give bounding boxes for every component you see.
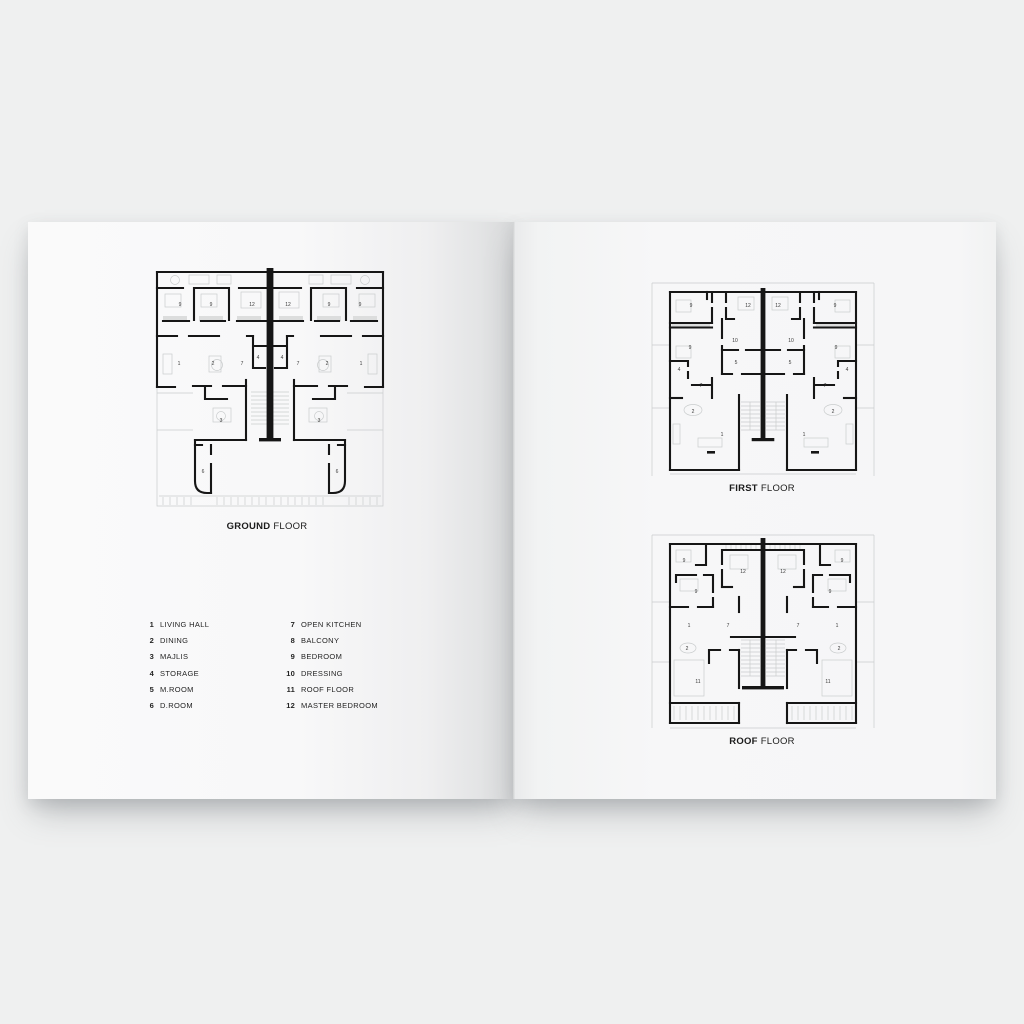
room-number-label: 12 xyxy=(740,569,746,575)
room-number-label: 9 xyxy=(829,589,832,595)
legend-row: 8BALCONY xyxy=(277,632,378,648)
legend-number: 3 xyxy=(138,652,154,661)
ground-party-wall xyxy=(267,268,274,440)
roof-party-wall-foot xyxy=(742,686,784,689)
room-number-label: 2 xyxy=(212,361,215,367)
room-number-label: 9 xyxy=(683,558,686,564)
room-number-label: 7 xyxy=(824,383,827,389)
room-number-label: 12 xyxy=(745,303,751,309)
room-number-label: 5 xyxy=(789,360,792,366)
room-number-label: 9 xyxy=(834,303,837,309)
book-spread-photo: 99121299127447213366 GROUNDFLOOR 1LIVING… xyxy=(0,0,1024,1024)
room-number-label: 6 xyxy=(202,469,205,475)
room-number-label: 2 xyxy=(832,409,835,415)
plan-title-ground: GROUNDFLOOR xyxy=(167,521,367,532)
room-number-label: 9 xyxy=(689,345,692,351)
left-page: 99121299127447213366 GROUNDFLOOR 1LIVING… xyxy=(28,222,514,799)
plan-title-first-rest: FLOOR xyxy=(761,483,795,494)
plan-title-roof-rest: FLOOR xyxy=(761,736,795,747)
legend-number: 1 xyxy=(138,620,154,629)
floor-plan-first: 9121299101095544772211 xyxy=(651,279,875,483)
room-number-label: 1 xyxy=(688,623,691,629)
legend-row: 1LIVING HALL xyxy=(138,616,209,632)
plan-title-first: FIRSTFLOOR xyxy=(662,483,862,494)
legend-column-1: 1LIVING HALL2DINING3MAJLIS4STORAGE5M.ROO… xyxy=(138,616,209,714)
legend-label: D.ROOM xyxy=(160,701,193,710)
legend-number: 10 xyxy=(277,669,295,678)
plan-title-roof-bold: ROOF xyxy=(729,736,757,747)
plan-title-ground-rest: FLOOR xyxy=(273,521,307,532)
right-page: 9121299101095544772211 FIRSTFLOOR xyxy=(514,222,996,799)
legend-number: 12 xyxy=(277,701,295,710)
ground-party-wall-foot xyxy=(259,438,281,441)
book-gutter-fold xyxy=(513,222,515,799)
room-number-label: 1 xyxy=(721,432,724,438)
room-number-label: 7 xyxy=(727,623,730,629)
room-number-label: 1 xyxy=(836,623,839,629)
room-number-label: 1 xyxy=(803,432,806,438)
plan-title-first-bold: FIRST xyxy=(729,483,758,494)
room-number-label: 10 xyxy=(732,338,738,344)
legend-row: 7OPEN KITCHEN xyxy=(277,616,378,632)
legend-label: MAJLIS xyxy=(160,652,188,661)
first-party-wall xyxy=(761,288,766,440)
room-number-label: 11 xyxy=(695,679,700,685)
room-number-label: 10 xyxy=(788,338,794,344)
room-number-label: 9 xyxy=(690,303,693,309)
room-number-label: 7 xyxy=(700,383,703,389)
legend-number: 4 xyxy=(138,669,154,678)
open-book: 99121299127447213366 GROUNDFLOOR 1LIVING… xyxy=(28,222,996,799)
room-number-label: 2 xyxy=(326,361,329,367)
room-number-label: 2 xyxy=(692,409,695,415)
legend-number: 5 xyxy=(138,685,154,694)
room-number-label: 6 xyxy=(336,469,339,475)
room-number-label: 3 xyxy=(220,418,223,424)
floor-plan-roof: 912129991771221111 xyxy=(651,531,875,735)
room-number-label: 9 xyxy=(835,345,838,351)
legend-row: 2DINING xyxy=(138,632,209,648)
room-number-label: 5 xyxy=(735,360,738,366)
room-number-label: 12 xyxy=(775,303,781,309)
roof-party-wall xyxy=(761,538,766,688)
legend-row: 3MAJLIS xyxy=(138,649,209,665)
room-number-label: 2 xyxy=(838,646,841,652)
room-number-label: 4 xyxy=(678,367,681,373)
legend-row: 4STORAGE xyxy=(138,665,209,681)
legend-row: 6D.ROOM xyxy=(138,697,209,713)
room-number-label: 7 xyxy=(797,623,800,629)
room-number-label: 4 xyxy=(257,355,260,361)
room-number-label: 12 xyxy=(285,302,291,308)
legend-label: MASTER BEDROOM xyxy=(301,701,378,710)
plan-title-roof: ROOFFLOOR xyxy=(662,736,862,747)
room-number-label: 7 xyxy=(241,361,244,367)
room-number-label: 1 xyxy=(360,361,363,367)
room-number-label: 9 xyxy=(179,302,182,308)
legend-label: DRESSING xyxy=(301,669,343,678)
legend-row: 5M.ROOM xyxy=(138,681,209,697)
room-number-label: 2 xyxy=(686,646,689,652)
legend-row: 10DRESSING xyxy=(277,665,378,681)
legend-label: DINING xyxy=(160,636,188,645)
floor-plan-ground: 99121299127447213366 xyxy=(155,268,385,510)
room-number-label: 9 xyxy=(210,302,213,308)
legend-row: 12MASTER BEDROOM xyxy=(277,697,378,713)
room-number-label: 3 xyxy=(318,418,321,424)
room-number-label: 1 xyxy=(178,361,181,367)
legend-label: M.ROOM xyxy=(160,685,194,694)
room-number-label: 9 xyxy=(359,302,362,308)
legend-number: 9 xyxy=(277,652,295,661)
legend-number: 2 xyxy=(138,636,154,645)
legend-row: 9BEDROOM xyxy=(277,649,378,665)
room-number-label: 4 xyxy=(846,367,849,373)
legend-label: ROOF FLOOR xyxy=(301,685,354,694)
legend-row: 11ROOF FLOOR xyxy=(277,681,378,697)
room-number-label: 9 xyxy=(841,558,844,564)
legend-label: BEDROOM xyxy=(301,652,342,661)
legend-label: LIVING HALL xyxy=(160,620,209,629)
legend-column-2: 7OPEN KITCHEN8BALCONY9BEDROOM10DRESSING1… xyxy=(277,616,378,714)
legend-label: OPEN KITCHEN xyxy=(301,620,361,629)
legend-number: 7 xyxy=(277,620,295,629)
plan-title-ground-bold: GROUND xyxy=(227,521,271,532)
legend-number: 6 xyxy=(138,701,154,710)
room-number-label: 12 xyxy=(780,569,786,575)
room-number-label: 11 xyxy=(825,679,830,685)
legend-number: 8 xyxy=(277,636,295,645)
room-number-label: 9 xyxy=(328,302,331,308)
room-number-label: 4 xyxy=(281,355,284,361)
room-number-label: 9 xyxy=(695,589,698,595)
room-number-label: 12 xyxy=(249,302,255,308)
first-party-wall-foot xyxy=(752,438,775,441)
legend-label: STORAGE xyxy=(160,669,199,678)
legend-label: BALCONY xyxy=(301,636,339,645)
legend-number: 11 xyxy=(277,685,295,694)
room-number-label: 7 xyxy=(297,361,300,367)
